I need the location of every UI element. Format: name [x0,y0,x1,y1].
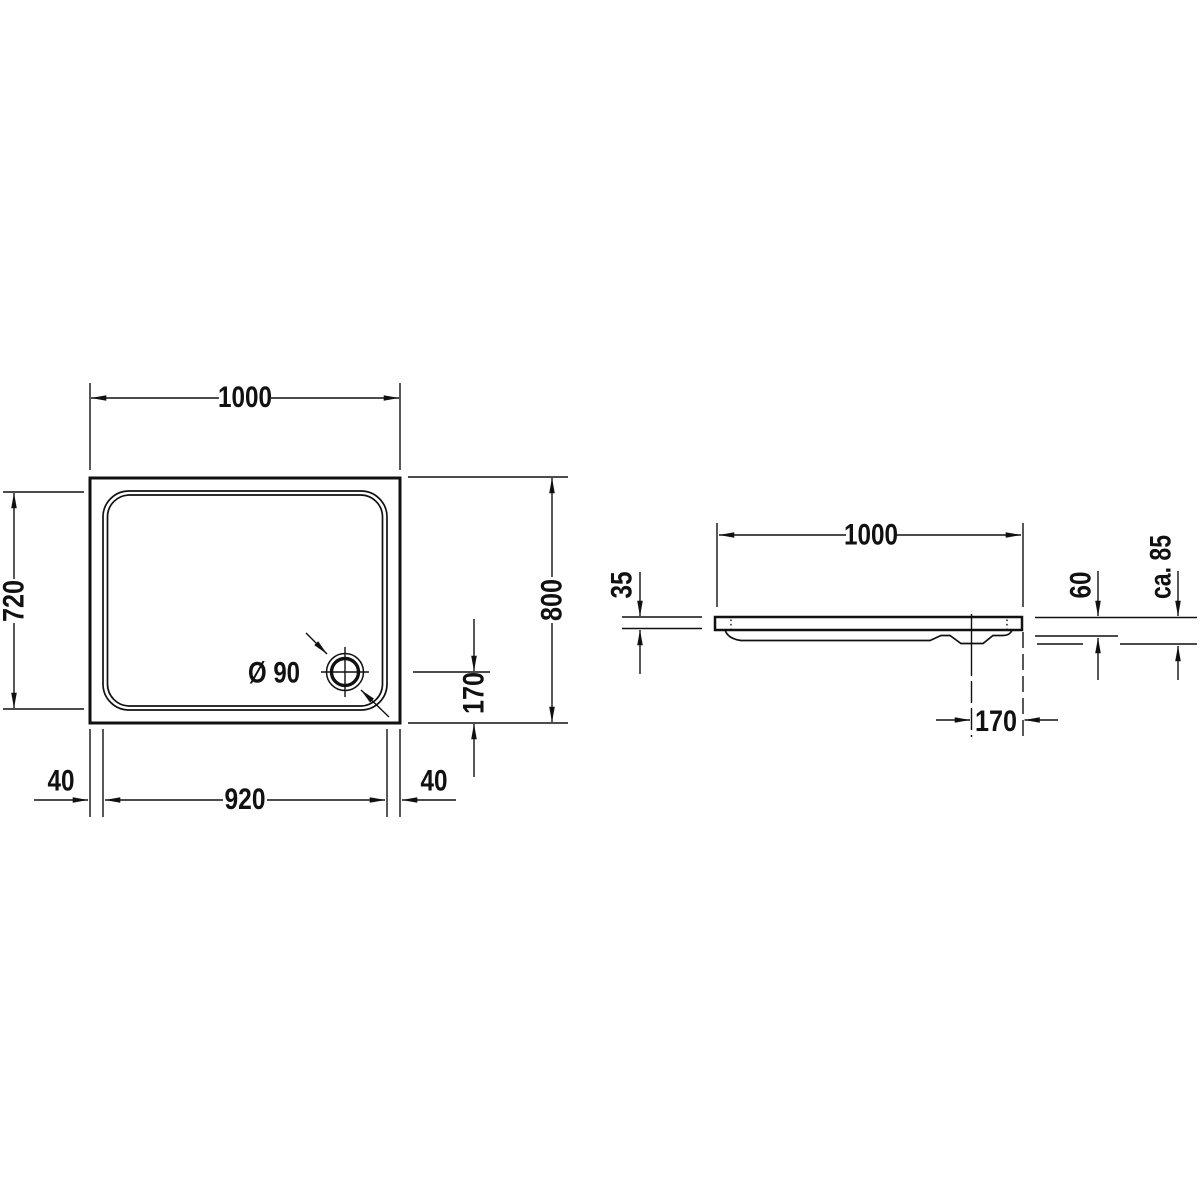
drain-leader-arrow-upper [306,633,327,654]
dimension-top-width: 1000 [90,381,400,470]
tray-outer-edge [90,478,400,723]
top-width-value: 1000 [218,381,272,414]
dimension-inner-height: 720 [0,492,84,709]
tray-profile-underside [725,630,1012,644]
drain-diameter-label: Ø 90 [248,657,300,690]
right-margin-value: 40 [421,765,448,798]
shower-tray-dimension-drawing: Ø 90 1000 720 800 [0,0,1200,1200]
technical-drawing-page: Ø 90 1000 720 800 [0,0,1200,1200]
basin-rim-inner-line [108,495,383,706]
top-view: Ø 90 1000 720 800 [0,381,569,817]
outer-height-value: 800 [536,579,569,621]
dimension-rim-height: 35 [606,572,703,675]
side-width-value: 1000 [844,519,898,552]
inner-width-value: 920 [225,783,266,816]
drain-offset-value-side: 170 [975,705,1017,738]
tray-profile-rim [715,617,1022,630]
dimension-drain-offset-top: 170 [413,619,491,777]
dimension-drain-offset-side: 170 [936,705,1058,738]
dimension-side-width: 1000 [717,519,1023,608]
left-margin-value: 40 [48,765,75,798]
dimension-body-and-total-height: 60 ca. 85 [1035,535,1197,680]
drain-offset-value-top: 170 [458,672,491,714]
rim-height-value: 35 [606,572,639,599]
total-height-value: ca. 85 [1145,535,1178,599]
inner-height-value: 720 [0,580,31,622]
body-height-value: 60 [1065,572,1098,599]
side-view: 1000 35 60 ca. 85 170 [606,519,1198,739]
dimension-bottom-widths: 40 920 40 [34,729,456,817]
